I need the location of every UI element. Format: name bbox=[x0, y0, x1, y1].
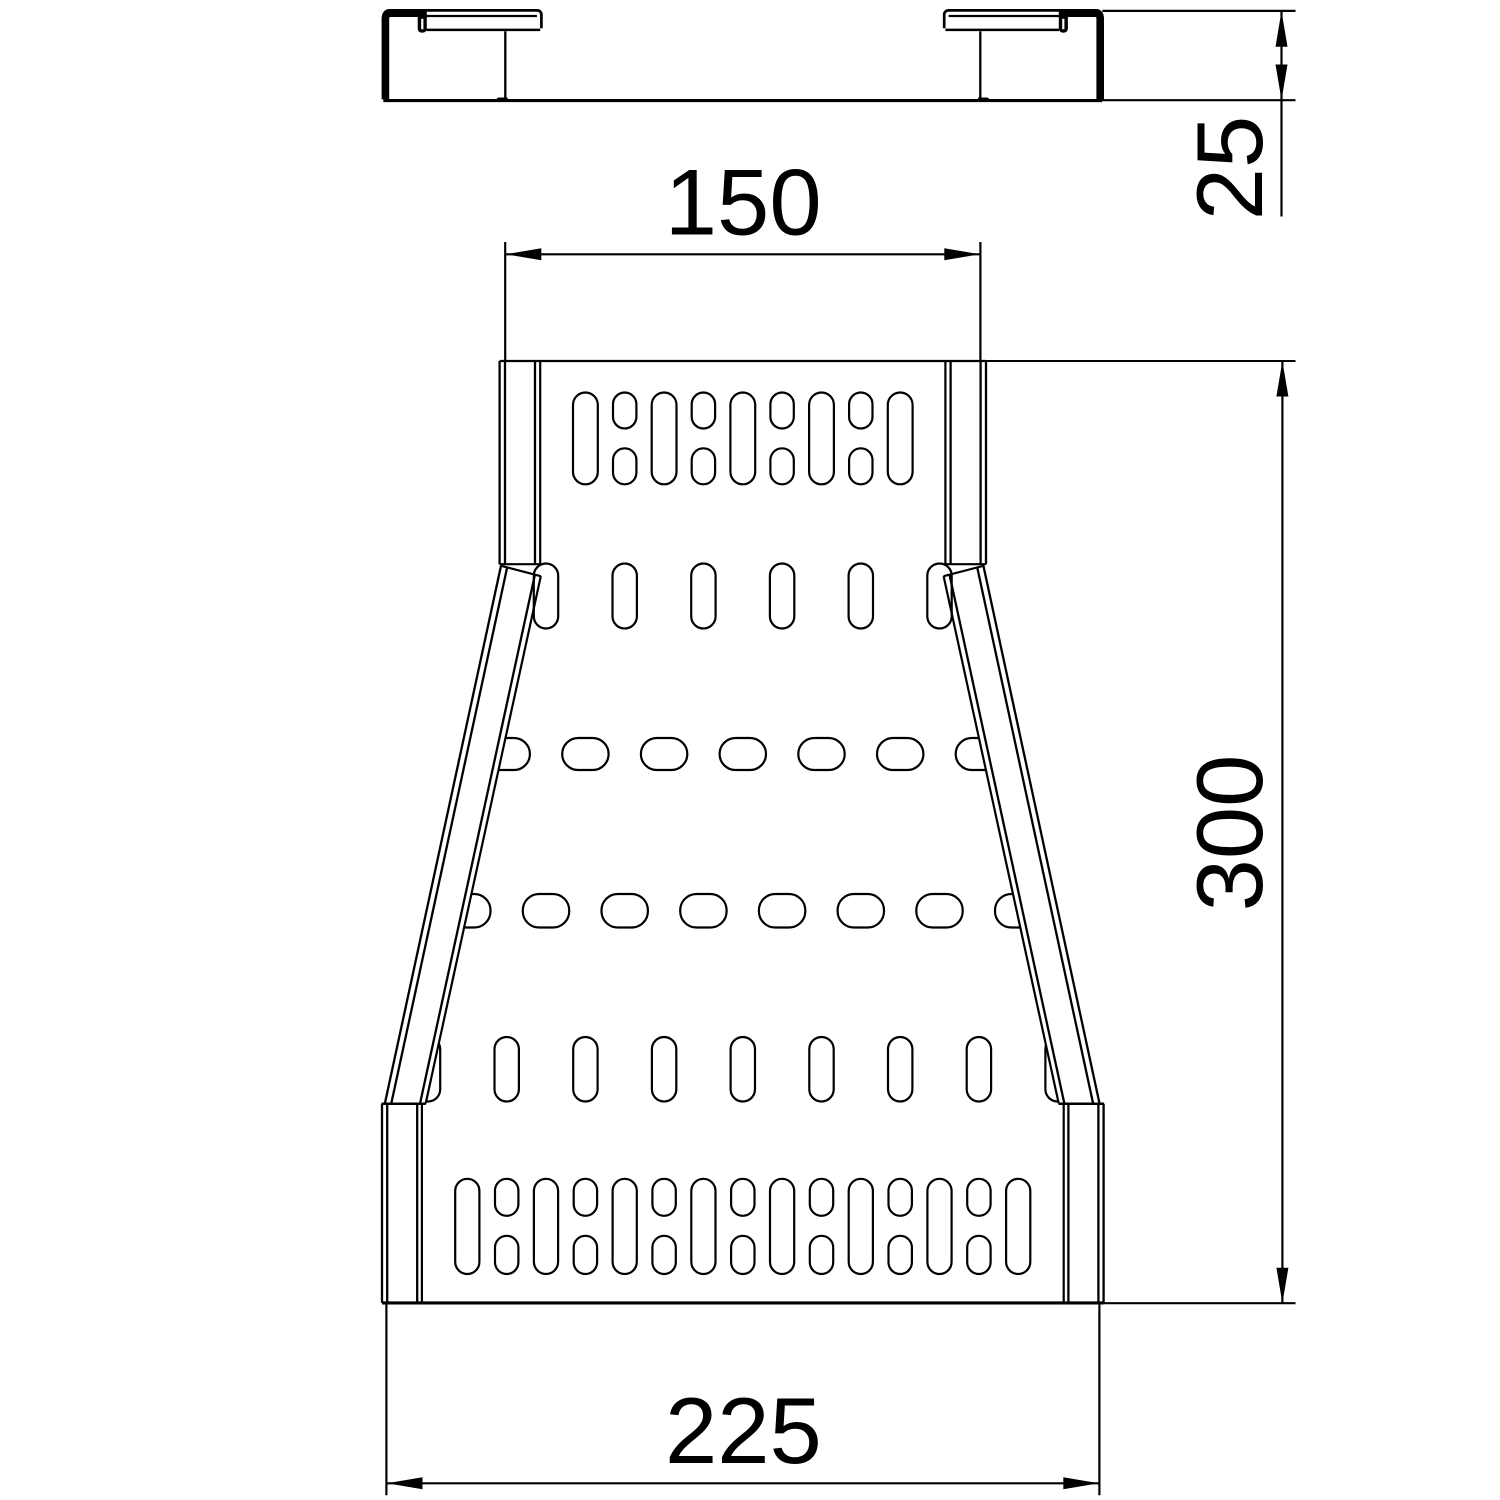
svg-text:225: 225 bbox=[665, 1378, 822, 1483]
svg-text:25: 25 bbox=[1177, 116, 1282, 221]
svg-text:300: 300 bbox=[1177, 755, 1282, 912]
svg-text:150: 150 bbox=[665, 150, 822, 255]
